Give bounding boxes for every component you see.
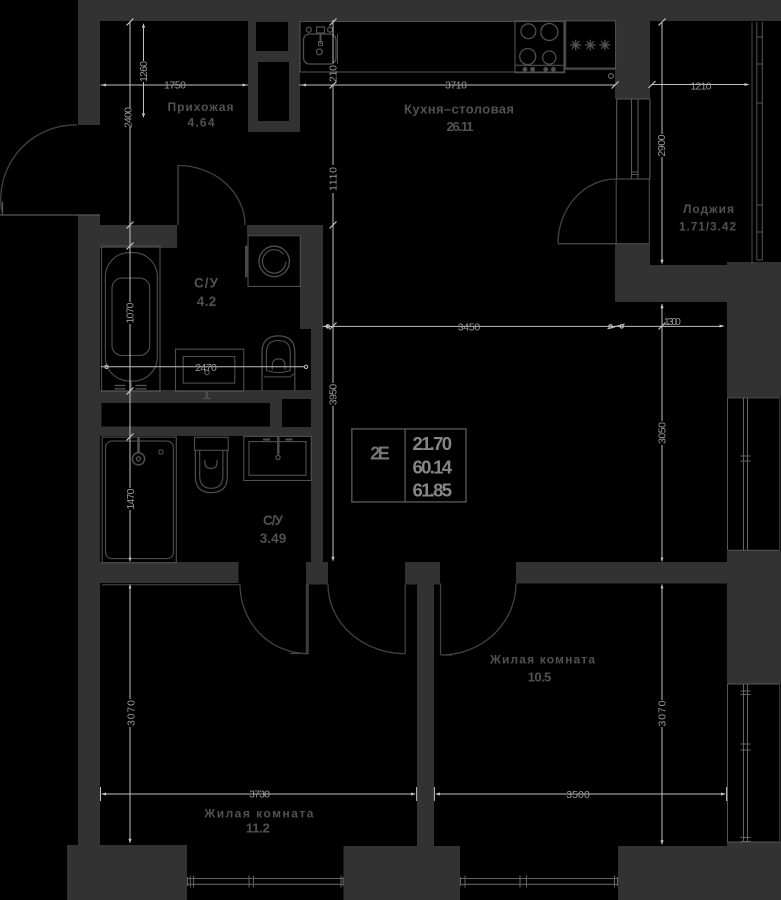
svg-text:3050: 3050 [657, 422, 669, 444]
svg-text:4.64: 4.64 [188, 116, 215, 130]
svg-text:С/У: С/У [194, 276, 219, 291]
svg-text:3950: 3950 [328, 384, 340, 406]
svg-text:С/У: С/У [263, 513, 284, 528]
svg-text:21.70: 21.70 [413, 433, 453, 454]
svg-text:10.5: 10.5 [528, 669, 551, 684]
svg-text:3.49: 3.49 [260, 531, 287, 546]
svg-text:Жилая комната: Жилая комната [203, 806, 313, 820]
svg-text:1300: 1300 [664, 316, 681, 328]
svg-text:2470: 2470 [195, 362, 217, 374]
svg-text:1110: 1110 [328, 167, 340, 191]
svg-text:3710: 3710 [445, 80, 467, 92]
svg-text:61.85: 61.85 [413, 480, 453, 501]
svg-text:2Е: 2Е [370, 443, 390, 463]
svg-text:1210: 1210 [691, 81, 712, 93]
svg-text:3070: 3070 [126, 700, 138, 726]
svg-text:11.2: 11.2 [246, 821, 270, 836]
svg-text:210: 210 [328, 65, 340, 82]
svg-text:1260: 1260 [138, 61, 150, 82]
svg-text:Кухня–столовая: Кухня–столовая [404, 102, 514, 117]
svg-text:3450: 3450 [458, 322, 481, 334]
svg-text:26.11: 26.11 [447, 119, 474, 134]
svg-text:2400: 2400 [123, 107, 135, 128]
svg-text:Жилая комната: Жилая комната [489, 652, 595, 666]
svg-text:4.2: 4.2 [197, 294, 217, 309]
svg-text:Прихожая: Прихожая [168, 100, 234, 114]
svg-text:1.71/3.42: 1.71/3.42 [679, 220, 736, 234]
svg-text:3070: 3070 [657, 700, 669, 726]
svg-text:1070: 1070 [125, 302, 137, 323]
svg-text:1750: 1750 [164, 80, 186, 92]
svg-text:2900: 2900 [656, 134, 668, 156]
svg-text:3500: 3500 [566, 789, 590, 801]
svg-text:3730: 3730 [249, 789, 270, 801]
svg-text:1470: 1470 [125, 488, 137, 509]
svg-text:Лоджия: Лоджия [683, 202, 734, 216]
svg-text:60.14: 60.14 [413, 456, 453, 477]
